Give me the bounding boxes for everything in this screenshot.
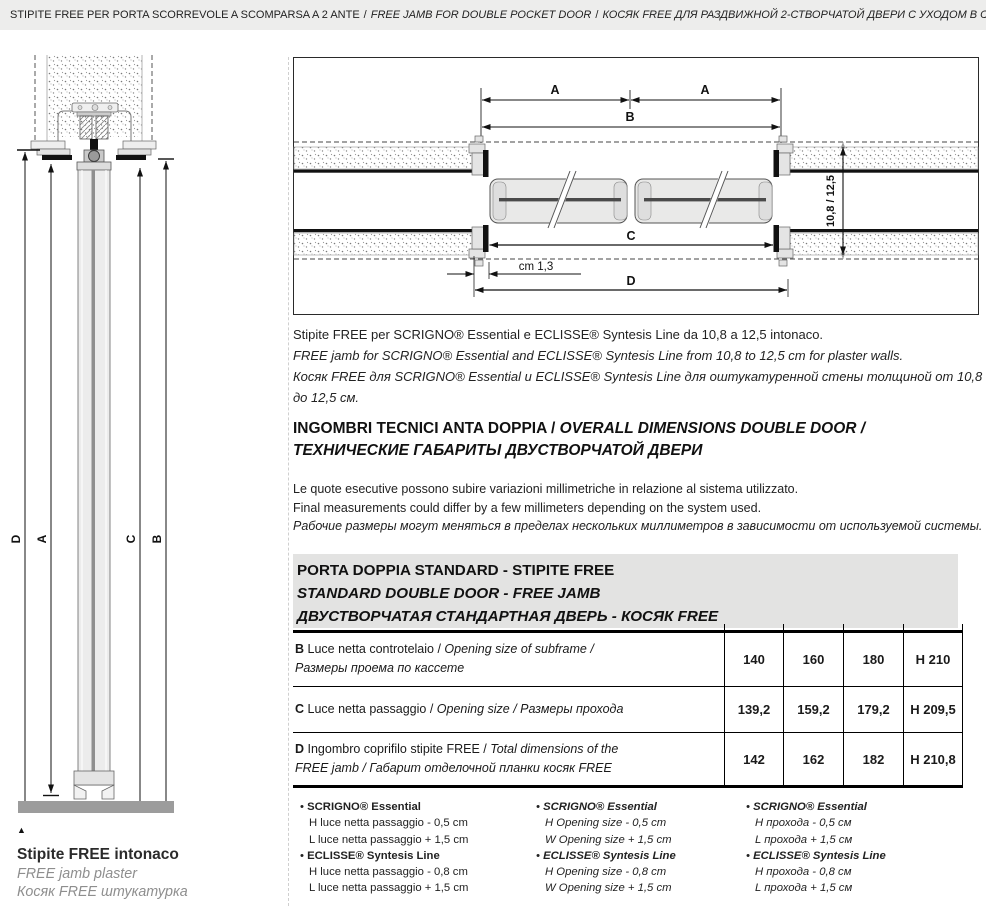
cell-value: 160	[783, 633, 843, 686]
dim-label-b: B	[150, 534, 164, 543]
door-panel	[78, 170, 110, 785]
heading-ru: ТЕХНИЧЕСКИЕ ГАБАРИТЫ ДВУСТВОРЧАТОЙ ДВЕРИ	[293, 440, 983, 462]
bullet: •	[746, 850, 750, 862]
row-c-description: C Luce netta passaggio / Opening size / …	[293, 687, 724, 732]
row-key: D	[295, 742, 304, 756]
table-row-d: D Ingombro coprifilo stipite FREE / Tota…	[293, 732, 963, 785]
brand-name: SCRIGNO® Essential	[307, 801, 421, 813]
caption-line-en: FREE jamb for SCRIGNO® Essential and ECL…	[293, 345, 983, 366]
row-desc-en: Opening size of subframe /	[444, 642, 593, 656]
dim-label-offset: cm 1,3	[519, 261, 554, 273]
bullet: •	[536, 801, 540, 813]
row-desc-it: Luce netta controtelaio /	[304, 642, 444, 656]
floor	[18, 801, 174, 813]
heading-line-1: INGOMBRI TECNICI ANTA DOPPIA / OVERALL D…	[293, 418, 983, 440]
row-d-description: D Ingombro coprifilo stipite FREE / Tota…	[293, 733, 724, 785]
bullet: •	[746, 801, 750, 813]
dim-label-d: D	[9, 534, 23, 543]
cell-value: 142	[724, 733, 783, 785]
cell-value: H 209,5	[903, 687, 963, 732]
row-desc-en2: FREE jamb /	[295, 761, 369, 775]
heading-it: INGOMBRI TECNICI ANTA DOPPIA /	[293, 420, 560, 437]
footnotes-italian: • SCRIGNO® Essential H luce netta passag…	[300, 799, 468, 897]
brand-line: • SCRIGNO® Essential	[746, 799, 886, 815]
footnote-line: H прохода - 0,5 см	[746, 815, 886, 831]
table-title-it: PORTA DOPPIA STANDARD - STIPITE FREE	[297, 559, 958, 582]
door-leaf-right	[635, 179, 772, 223]
footnote-line: W Opening size + 1,5 cm	[536, 880, 676, 896]
dim-label-a-left: A	[550, 83, 559, 97]
caption-line-it: Stipite FREE per SCRIGNO® Essential e EC…	[293, 324, 983, 345]
bullet: •	[300, 850, 304, 862]
header-title-it: STIPITE FREE PER PORTA SCORREVOLE A SCOM…	[10, 9, 360, 21]
left-caption-ru: Косяк FREE штукатурка	[17, 883, 188, 902]
row-desc-ru: Размеры прохода	[520, 702, 623, 716]
row-b-description: B Luce netta controtelaio / Opening size…	[293, 633, 724, 686]
footnote-line: W Opening size + 1,5 cm	[536, 832, 676, 848]
brand-name: ECLISSE® Syntesis Line	[543, 850, 676, 862]
cell-value: 139,2	[724, 687, 783, 732]
dimensions-table: B Luce netta controtelaio / Opening size…	[293, 630, 963, 788]
cell-value: H 210	[903, 633, 963, 686]
bullet: •	[300, 801, 304, 813]
dim-label-a: A	[35, 534, 49, 543]
row-key: B	[295, 642, 304, 656]
row-desc-it: Luce netta passaggio /	[304, 702, 437, 716]
brand-name: ECLISSE® Syntesis Line	[307, 850, 440, 862]
brand-line: • ECLISSE® Syntesis Line	[536, 848, 676, 864]
brand-line: • ECLISSE® Syntesis Line	[300, 848, 468, 864]
cell-value: 182	[843, 733, 903, 785]
cell-value: 159,2	[783, 687, 843, 732]
footnotes-english: • SCRIGNO® Essential H Opening size - 0,…	[536, 799, 676, 897]
page-header-strip: STIPITE FREE PER PORTA SCORREVOLE A SCOM…	[0, 0, 986, 30]
row-desc-it: Ingombro coprifilo stipite FREE /	[304, 742, 490, 756]
floor-guide	[18, 771, 174, 813]
header-separator: /	[595, 9, 598, 21]
left-drawing-caption: Stipite FREE intonaco FREE jamb plaster …	[17, 846, 188, 902]
dim-label-a-right: A	[700, 83, 709, 97]
row-key: C	[295, 702, 304, 716]
plan-section-drawing: A A B	[293, 57, 979, 315]
footnote-line: L luce netta passaggio + 1,5 cm	[300, 832, 468, 848]
footnote-line: H Opening size - 0,8 cm	[536, 864, 676, 880]
header-title-ru: КОСЯК FREE ДЛЯ РАЗДВИЖНОЙ 2-СТВОРЧАТОЙ Д…	[602, 9, 986, 21]
footnote-line: H luce netta passaggio - 0,8 cm	[300, 864, 468, 880]
bullet: •	[536, 850, 540, 862]
row-desc-en: Total dimensions of the	[490, 742, 618, 756]
brand-line: • ECLISSE® Syntesis Line	[746, 848, 886, 864]
footnote-line: H Opening size - 0,5 cm	[536, 815, 676, 831]
footnote-line: L прохода + 1,5 см	[746, 880, 886, 896]
table-title-ru: ДВУСТВОРЧАТАЯ СТАНДАРТНАЯ ДВЕРЬ - КОСЯК …	[297, 605, 958, 628]
dim-label-c: C	[626, 229, 635, 243]
brand-line: • SCRIGNO® Essential	[536, 799, 676, 815]
cell-value: 179,2	[843, 687, 903, 732]
footnote-line: H luce netta passaggio - 0,5 cm	[300, 815, 468, 831]
plan-drawing-caption: Stipite FREE per SCRIGNO® Essential e EC…	[293, 324, 983, 408]
cell-value: 162	[783, 733, 843, 785]
dim-label-wall-thickness: 10,8 / 12,5	[825, 175, 837, 227]
footnote-line: L прохода + 1,5 см	[746, 832, 886, 848]
brand-name: ECLISSE® Syntesis Line	[753, 850, 886, 862]
triangle-marker: ▲	[17, 825, 26, 835]
note-it: Le quote esecutive possono subire variaz…	[293, 480, 983, 499]
dim-label-d: D	[626, 274, 635, 288]
table-row-b: B Luce netta controtelaio / Opening size…	[293, 633, 963, 686]
vertical-section-drawing: D A C B	[0, 55, 290, 815]
dim-label-b: B	[625, 110, 634, 124]
header-title-en: FREE JAMB FOR DOUBLE POCKET DOOR	[371, 9, 592, 21]
note-ru: Рабочие размеры могут меняться в предела…	[293, 517, 983, 536]
footnotes-russian: • SCRIGNO® Essential H прохода - 0,5 см …	[746, 799, 886, 897]
cell-value: H 210,8	[903, 733, 963, 785]
row-desc-en: Opening size /	[437, 702, 520, 716]
cell-value: 140	[724, 633, 783, 686]
left-caption-en: FREE jamb plaster	[17, 865, 188, 884]
footnote-line: H прохода - 0,8 см	[746, 864, 886, 880]
brand-name: SCRIGNO® Essential	[753, 801, 867, 813]
catalog-page: STIPITE FREE PER PORTA SCORREVOLE A SCOM…	[0, 0, 986, 906]
table-title-bar: PORTA DOPPIA STANDARD - STIPITE FREE STA…	[293, 554, 958, 628]
brand-name: SCRIGNO® Essential	[543, 801, 657, 813]
footnote-line: L luce netta passaggio + 1,5 cm	[300, 880, 468, 896]
caption-line-ru: Косяк FREE для SCRIGNO® Essential и ECLI…	[293, 366, 983, 408]
row-desc-ru: Размеры проема по кассете	[295, 661, 464, 675]
cell-value: 180	[843, 633, 903, 686]
heading-en: OVERALL DIMENSIONS DOUBLE DOOR /	[560, 420, 865, 437]
header-separator: /	[364, 9, 367, 21]
dim-label-c: C	[124, 534, 138, 543]
table-row-c: C Luce netta passaggio / Opening size / …	[293, 686, 963, 732]
table-title-en: STANDARD DOUBLE DOOR - FREE JAMB	[297, 582, 958, 605]
section-heading: INGOMBRI TECNICI ANTA DOPPIA / OVERALL D…	[293, 418, 983, 462]
note-en: Final measurements could differ by a few…	[293, 499, 983, 518]
wall-section	[35, 55, 152, 148]
row-desc-ru: Габарит отделочной планки косяк FREE	[369, 761, 612, 775]
tolerance-notes: Le quote esecutive possono subire variaz…	[293, 480, 983, 536]
brand-line: • SCRIGNO® Essential	[300, 799, 468, 815]
left-caption-it: Stipite FREE intonaco	[17, 846, 188, 865]
